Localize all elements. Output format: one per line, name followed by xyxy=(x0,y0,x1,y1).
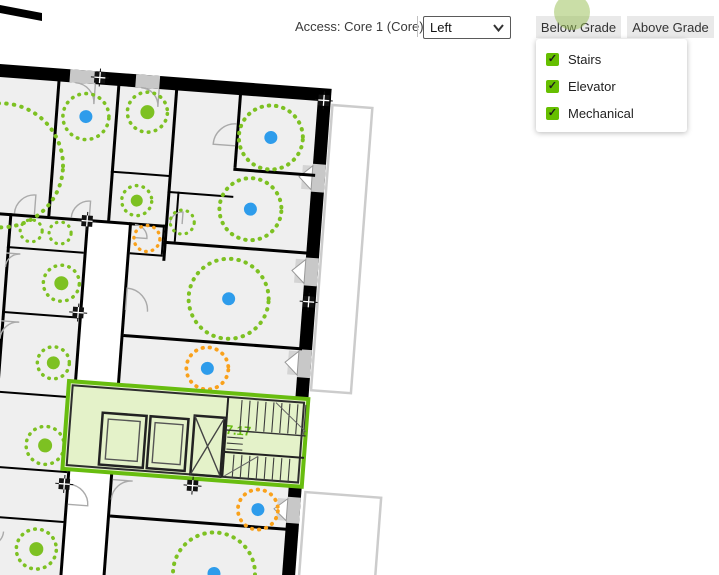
layer-label: Mechanical xyxy=(568,106,634,121)
layer-row-stairs[interactable]: ✓ Stairs xyxy=(546,46,677,73)
checkbox-icon[interactable]: ✓ xyxy=(546,53,559,66)
layer-label: Elevator xyxy=(568,79,616,94)
selected-core-room[interactable]: 7.17 xyxy=(62,381,308,487)
side-select-value: Left xyxy=(430,20,493,35)
toolbar-divider xyxy=(417,16,418,37)
building-plan-rotated: 7.17 xyxy=(0,57,412,575)
layer-label: Stairs xyxy=(568,52,601,67)
toolbar: Access: Core 1 (Core) Left Below Grade A… xyxy=(0,0,719,44)
layers-panel: ✓ Stairs ✓ Elevator ✓ Mechanical xyxy=(536,39,687,132)
side-select[interactable]: Left xyxy=(423,16,511,39)
access-label: Access: Core 1 (Core) xyxy=(295,19,424,34)
checkbox-icon[interactable]: ✓ xyxy=(546,80,559,93)
layer-row-mechanical[interactable]: ✓ Mechanical xyxy=(546,100,677,127)
chevron-down-icon xyxy=(493,24,504,32)
app-window: 7.17 xyxy=(0,0,719,575)
checkbox-icon[interactable]: ✓ xyxy=(546,107,559,120)
below-grade-button[interactable]: Below Grade xyxy=(536,16,621,38)
above-grade-button[interactable]: Above Grade xyxy=(627,16,714,38)
layer-row-elevator[interactable]: ✓ Elevator xyxy=(546,73,677,100)
